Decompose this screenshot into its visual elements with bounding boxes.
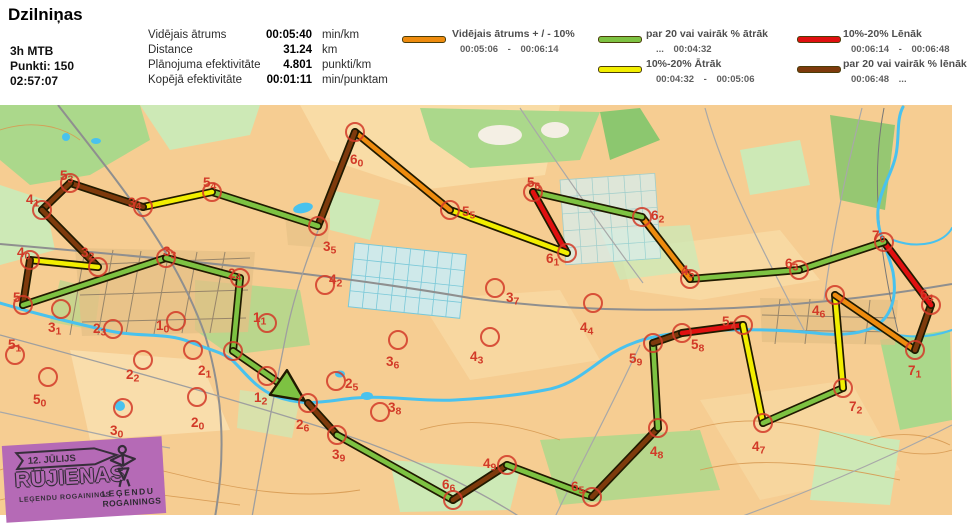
legend-swatch-fastest <box>598 36 642 43</box>
legend-range: 00:05:06 - 00:06:14 <box>460 44 559 55</box>
legend-label: 10%-20% Lēnāk <box>843 28 922 40</box>
points-label: Punkti: 150 <box>10 59 74 73</box>
event-date: 12. JŪLIJS <box>27 453 76 467</box>
stat-unit: min/punktam <box>322 74 388 86</box>
legend-label: Vidējais ātrums + / - 10% <box>452 28 575 40</box>
legend-swatch-avg <box>402 36 446 43</box>
route-segment-48-59 <box>653 343 658 428</box>
legend-label: 10%-20% Ātrāk <box>646 58 721 70</box>
rogaining-logo-icon <box>104 443 143 489</box>
total-time-label: 02:57:07 <box>10 74 58 88</box>
stat-unit: km <box>322 44 337 56</box>
legend-swatch-slow <box>797 36 841 43</box>
legend-label: par 20 vai vairāk % lēnāk <box>843 58 967 70</box>
legend-range: 00:06:14 - 00:06:48 <box>851 44 950 55</box>
stat-label: Distance <box>148 44 193 56</box>
stat-value: 00:05:40 <box>238 29 312 41</box>
stat-unit: min/km <box>322 29 359 41</box>
legend-range: ... 00:04:32 <box>656 44 712 55</box>
control-5-label: 5 <box>13 290 21 305</box>
stat-value: 4.801 <box>238 59 312 71</box>
legend-swatch-fast <box>598 66 642 73</box>
stat-label: Vidējais ātrums <box>148 29 226 41</box>
logo-text-line2: ROGAININGS <box>102 495 161 509</box>
legend-label: par 20 vai vairāk % ātrāk <box>646 28 768 40</box>
stat-label: Kopējā efektivitāte <box>148 74 242 86</box>
category-label: 3h MTB <box>10 44 53 58</box>
legend-swatch-slowest <box>797 66 841 73</box>
legend-range: 00:04:32 - 00:05:06 <box>656 74 755 85</box>
event-banner: 12. JŪLIJS RŪJIENAS LEĢENDU ROGAININGS L… <box>2 436 166 523</box>
route-analysis-report: { "header": { "title": "Dzilniņas", "cat… <box>0 0 968 522</box>
report-header: Dzilniņas 3h MTB Punkti: 150 02:57:07 Vi… <box>0 0 968 105</box>
stat-unit: punkti/km <box>322 59 371 71</box>
page-title: Dzilniņas <box>8 5 83 25</box>
stat-value: 00:01:11 <box>238 74 312 86</box>
legend-range: 00:06:48 ... <box>851 74 907 85</box>
stat-value: 31.24 <box>238 44 312 56</box>
event-subtitle: LEĢENDU ROGAININGS <box>19 491 111 504</box>
